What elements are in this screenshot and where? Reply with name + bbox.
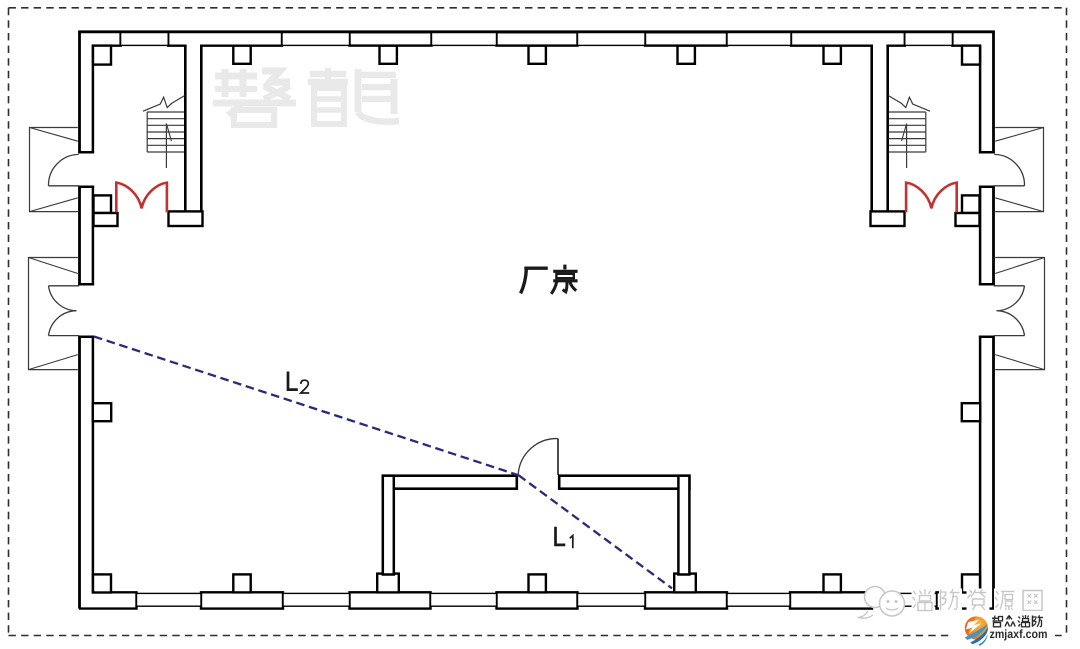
svg-text:zmjaxf.com: zmjaxf.com xyxy=(990,627,1048,641)
